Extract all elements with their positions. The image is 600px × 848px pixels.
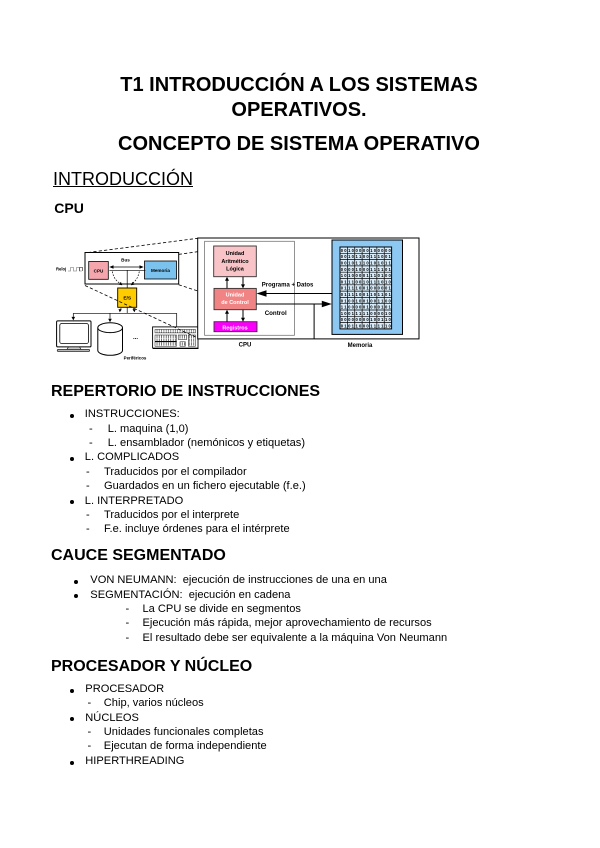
svg-text:0 0: 0 0 (385, 273, 391, 278)
svg-text:1 0: 1 0 (378, 261, 384, 266)
svg-text:...: ... (133, 335, 138, 341)
svg-text:0 1: 0 1 (378, 273, 384, 278)
svg-text:0 0: 0 0 (341, 261, 347, 266)
svg-text:1 0: 1 0 (348, 248, 354, 253)
svg-text:0 0: 0 0 (385, 298, 391, 303)
svg-text:1 0: 1 0 (378, 254, 384, 259)
svg-text:Programa + Datos: Programa + Datos (262, 283, 314, 289)
svg-text:Control: Control (265, 310, 287, 317)
svg-text:1 1: 1 1 (378, 292, 384, 297)
svg-text:1 1: 1 1 (385, 261, 391, 266)
svg-text:0 0: 0 0 (341, 248, 347, 253)
svg-text:0 0: 0 0 (370, 311, 376, 316)
svg-text:0 0: 0 0 (363, 317, 369, 322)
svg-text:1 1: 1 1 (370, 273, 376, 278)
svg-text:1 0: 1 0 (356, 324, 362, 329)
svg-text:0 0: 0 0 (363, 254, 369, 259)
svg-text:0 0: 0 0 (341, 267, 347, 272)
svg-text:0 1: 0 1 (385, 267, 391, 272)
svg-text:0 0: 0 0 (356, 273, 362, 278)
svg-text:0 0: 0 0 (363, 248, 369, 253)
svg-text:1 1: 1 1 (356, 261, 362, 266)
svg-text:1 0: 1 0 (356, 292, 362, 297)
svg-text:1 1: 1 1 (348, 279, 354, 284)
svg-text:0 1: 0 1 (348, 311, 354, 316)
svg-text:Periféricos: Periféricos (124, 355, 147, 360)
svg-text:E/S: E/S (123, 296, 132, 302)
svg-text:Reloj: Reloj (56, 266, 66, 271)
svg-text:0 0: 0 0 (363, 324, 369, 329)
svg-text:0 0: 0 0 (370, 286, 376, 291)
svg-text:1 1: 1 1 (378, 298, 384, 303)
svg-text:0 1: 0 1 (341, 298, 347, 303)
svg-text:0 1: 0 1 (341, 292, 347, 297)
svg-text:1 0: 1 0 (385, 317, 391, 322)
svg-text:0 1: 0 1 (341, 324, 347, 329)
svg-text:1 1: 1 1 (378, 324, 384, 329)
svg-text:1 0: 1 0 (370, 292, 376, 297)
svg-text:Bus: Bus (121, 257, 130, 262)
svg-text:0 0: 0 0 (363, 267, 369, 272)
svg-text:0 1: 0 1 (348, 324, 354, 329)
svg-text:0 0: 0 0 (356, 279, 362, 284)
svg-text:0 0: 0 0 (378, 286, 384, 291)
svg-text:Registros: Registros (222, 326, 247, 332)
svg-text:0 0: 0 0 (348, 317, 354, 322)
svg-text:Aritmético: Aritmético (221, 259, 249, 265)
svg-text:1 1: 1 1 (348, 286, 354, 291)
svg-text:0 0: 0 0 (348, 305, 354, 310)
svg-text:0 1: 0 1 (363, 298, 369, 303)
svg-text:1 1: 1 1 (370, 267, 376, 272)
svg-text:1 0: 1 0 (348, 273, 354, 278)
svg-text:1 0: 1 0 (341, 273, 347, 278)
svg-text:0 0: 0 0 (370, 305, 376, 310)
svg-text:0 1: 0 1 (385, 305, 391, 310)
svg-text:1 0: 1 0 (356, 286, 362, 291)
svg-text:0 1: 0 1 (363, 273, 369, 278)
svg-text:0 0: 0 0 (348, 267, 354, 272)
svg-text:1 1: 1 1 (356, 311, 362, 316)
svg-text:0 0: 0 0 (356, 317, 362, 322)
svg-text:1 0: 1 0 (348, 261, 354, 266)
svg-text:0 1: 0 1 (363, 286, 369, 291)
svg-text:0 1: 0 1 (385, 286, 391, 291)
svg-text:0 0: 0 0 (378, 311, 384, 316)
svg-text:Unidad: Unidad (226, 251, 245, 257)
svg-text:1 1: 1 1 (363, 311, 369, 316)
svg-text:0 0: 0 0 (356, 248, 362, 253)
svg-text:0 0: 0 0 (356, 305, 362, 310)
svg-text:0 1: 0 1 (363, 292, 369, 297)
svg-text:Unidad: Unidad (226, 292, 245, 298)
svg-text:1 0: 1 0 (385, 279, 391, 284)
svg-text:1 1: 1 1 (341, 305, 347, 310)
svg-text:CPU: CPU (239, 343, 252, 349)
svg-text:1 1: 1 1 (348, 292, 354, 297)
svg-text:0 0: 0 0 (370, 298, 376, 303)
svg-text:Lógica: Lógica (226, 267, 245, 273)
svg-text:1 1: 1 1 (378, 267, 384, 272)
svg-text:0 1: 0 1 (363, 305, 369, 310)
svg-text:0 0: 0 0 (385, 248, 391, 253)
svg-text:0 1: 0 1 (385, 254, 391, 259)
svg-text:1 0: 1 0 (363, 279, 369, 284)
svg-text:Memoria: Memoria (151, 268, 170, 273)
svg-text:0 1: 0 1 (385, 292, 391, 297)
svg-text:de Control: de Control (221, 300, 249, 306)
svg-text:CPU: CPU (94, 269, 104, 274)
svg-text:1 0: 1 0 (370, 317, 376, 322)
svg-text:1 0: 1 0 (356, 267, 362, 272)
svg-text:1 0: 1 0 (378, 279, 384, 284)
svg-text:0 0: 0 0 (378, 248, 384, 253)
svg-text:0 0: 0 0 (348, 298, 354, 303)
svg-text:1 0: 1 0 (370, 261, 376, 266)
svg-text:0 1: 0 1 (341, 286, 347, 291)
svg-text:1 1: 1 1 (370, 279, 376, 284)
svg-text:Memoria: Memoria (348, 343, 373, 349)
svg-text:0 1: 0 1 (341, 279, 347, 284)
svg-text:1 0: 1 0 (348, 254, 354, 259)
svg-text:1 1: 1 1 (370, 254, 376, 259)
svg-text:1 0: 1 0 (341, 311, 347, 316)
svg-text:1 0: 1 0 (363, 261, 369, 266)
svg-text:1 0: 1 0 (385, 324, 391, 329)
svg-text:1 0: 1 0 (356, 298, 362, 303)
svg-text:0 1: 0 1 (378, 317, 384, 322)
svg-text:1 1: 1 1 (356, 254, 362, 259)
svg-text:0 0: 0 0 (341, 254, 347, 259)
svg-text:0 1: 0 1 (378, 305, 384, 310)
svg-text:1 0: 1 0 (370, 248, 376, 253)
svg-text:1 0: 1 0 (385, 311, 391, 316)
svg-text:1 1: 1 1 (370, 324, 376, 329)
svg-text:0 0: 0 0 (341, 317, 347, 322)
